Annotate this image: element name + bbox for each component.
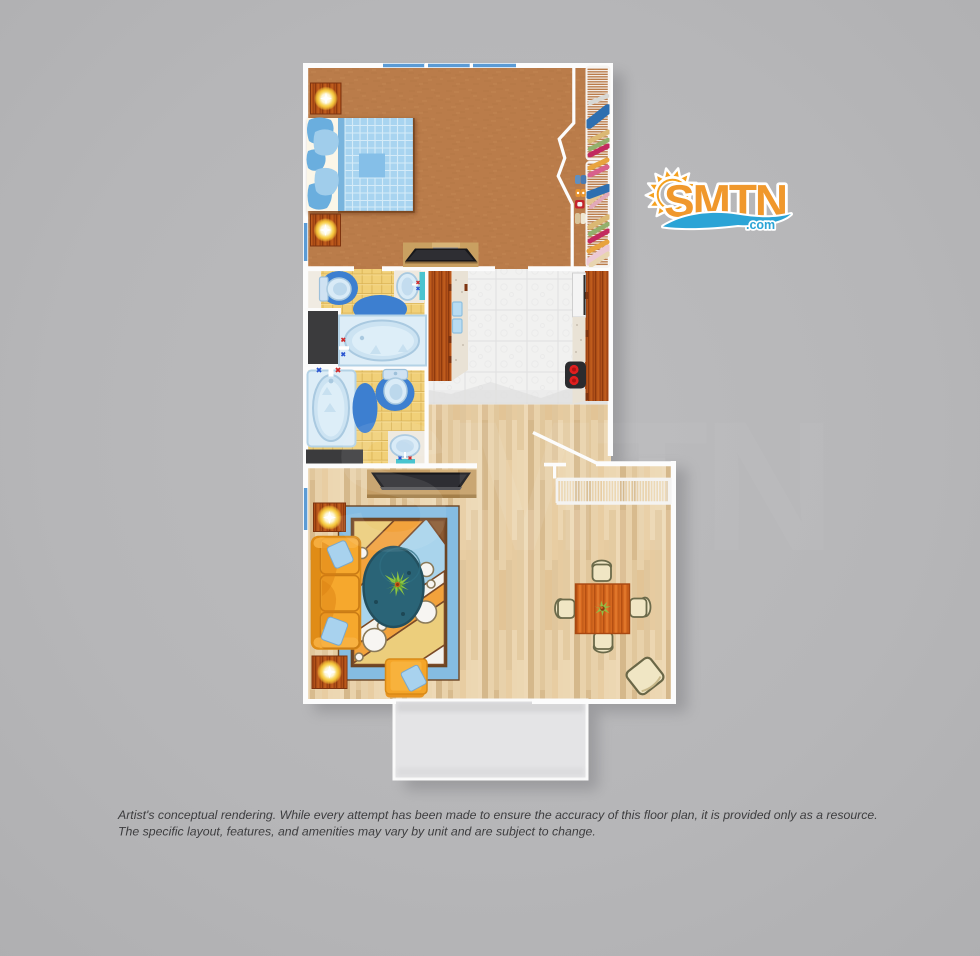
svg-text:.com: .com (746, 218, 775, 232)
svg-text:Artist's conceptual rendering.: Artist's conceptual rendering. While eve… (117, 808, 878, 822)
svg-text:The specific layout, features,: The specific layout, features, and ameni… (118, 825, 596, 839)
